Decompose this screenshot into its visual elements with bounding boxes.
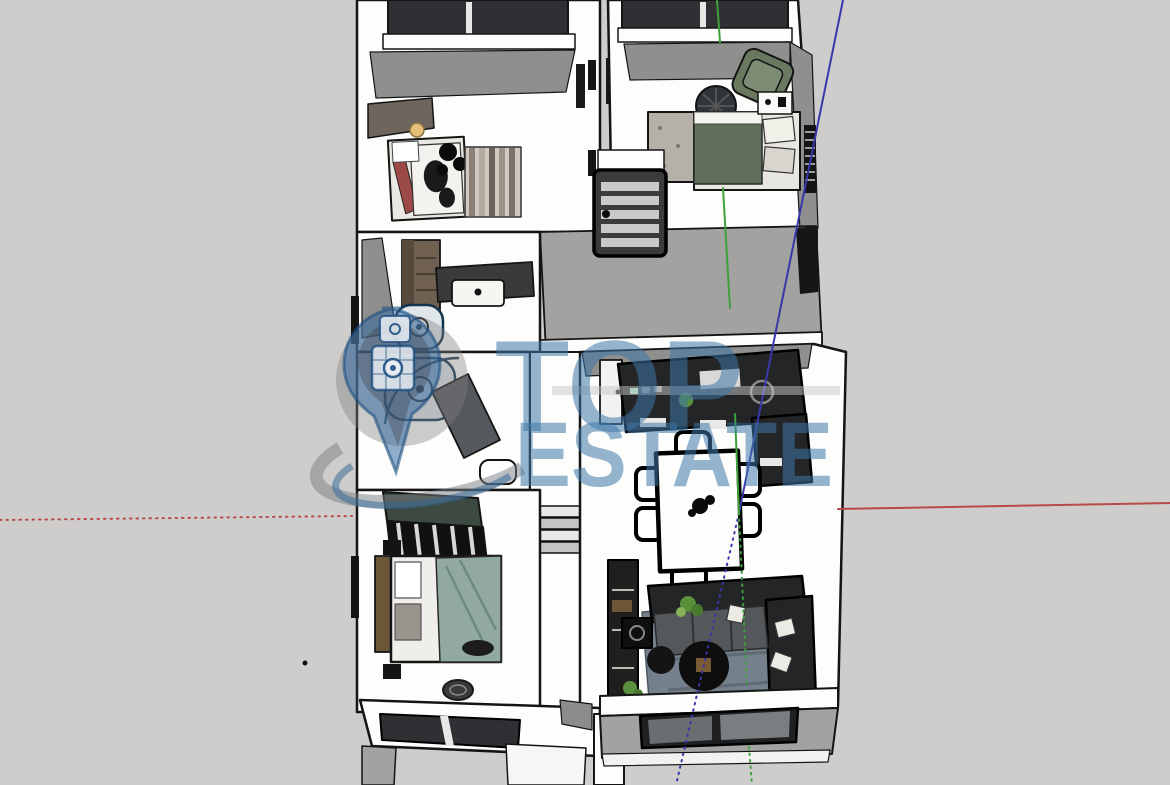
render-canvas: TOP ESTATE	[0, 0, 1170, 785]
coffee-table-small	[647, 646, 675, 674]
lower-white-wall	[506, 744, 586, 785]
pillow	[763, 116, 795, 143]
striped-rug	[465, 147, 521, 217]
door-frame	[351, 556, 359, 618]
window-pane	[648, 716, 712, 744]
pillow	[395, 562, 421, 598]
stray-mark	[303, 661, 308, 666]
window-mullion	[700, 2, 706, 28]
window-top-left	[388, 0, 568, 36]
window-pane	[720, 711, 790, 740]
bottom-left-bedroom	[351, 490, 540, 712]
staircase	[594, 170, 666, 256]
throw-pillow	[727, 605, 746, 624]
pillow	[763, 147, 795, 174]
window-sill	[618, 28, 792, 42]
faucet	[475, 289, 482, 296]
sofa-right	[766, 596, 816, 704]
nightstand	[383, 540, 401, 555]
headboard-slats	[375, 556, 391, 652]
bed-top-right	[648, 112, 800, 190]
top-left-bedroom	[357, 0, 600, 232]
handrail-knob	[602, 210, 610, 218]
watermark-line2: ESTATE	[515, 404, 833, 506]
pillow	[395, 604, 421, 640]
duvet	[694, 120, 762, 184]
throw-pillow	[774, 618, 795, 638]
nightstand	[383, 664, 401, 679]
side-table	[622, 618, 652, 648]
door-frame	[588, 60, 596, 90]
lamp-ball	[410, 123, 424, 137]
round-rug-small	[443, 680, 473, 700]
nightstand	[758, 92, 792, 114]
window-mullion	[466, 2, 472, 34]
bed-bottom-left	[375, 556, 501, 662]
dark-throw	[462, 640, 494, 656]
pillow	[392, 141, 419, 162]
floorplan-render: TOP ESTATE	[0, 0, 1170, 785]
inner-wall-face	[370, 50, 575, 98]
window-sill	[383, 34, 575, 49]
pillar-gray	[362, 746, 396, 785]
